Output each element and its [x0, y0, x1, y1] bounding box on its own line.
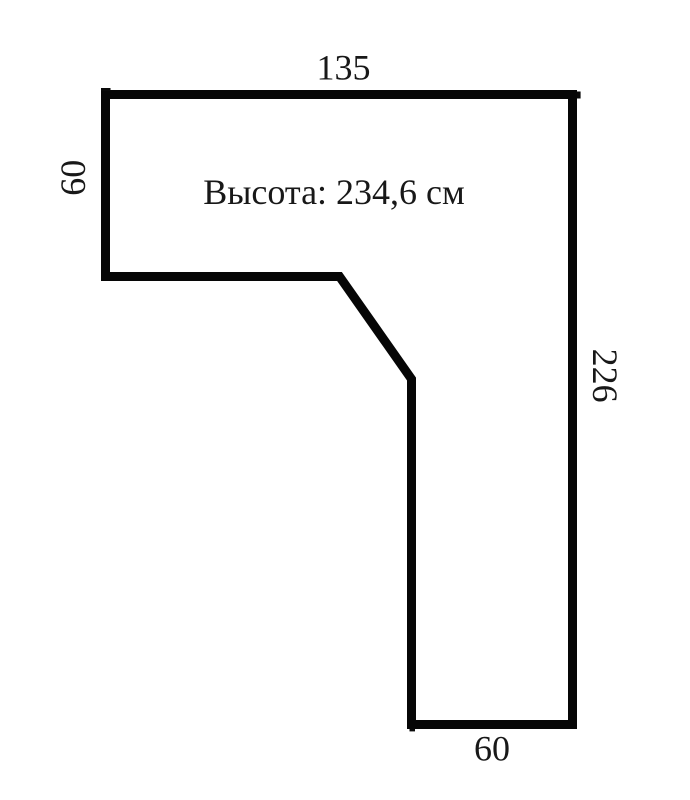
svg-text:Высота: 234,6 см: Высота: 234,6 см: [203, 172, 465, 212]
svg-text:60: 60: [474, 729, 510, 769]
svg-text:135: 135: [317, 48, 371, 88]
svg-text:60: 60: [53, 160, 93, 196]
svg-text:226: 226: [585, 349, 625, 403]
